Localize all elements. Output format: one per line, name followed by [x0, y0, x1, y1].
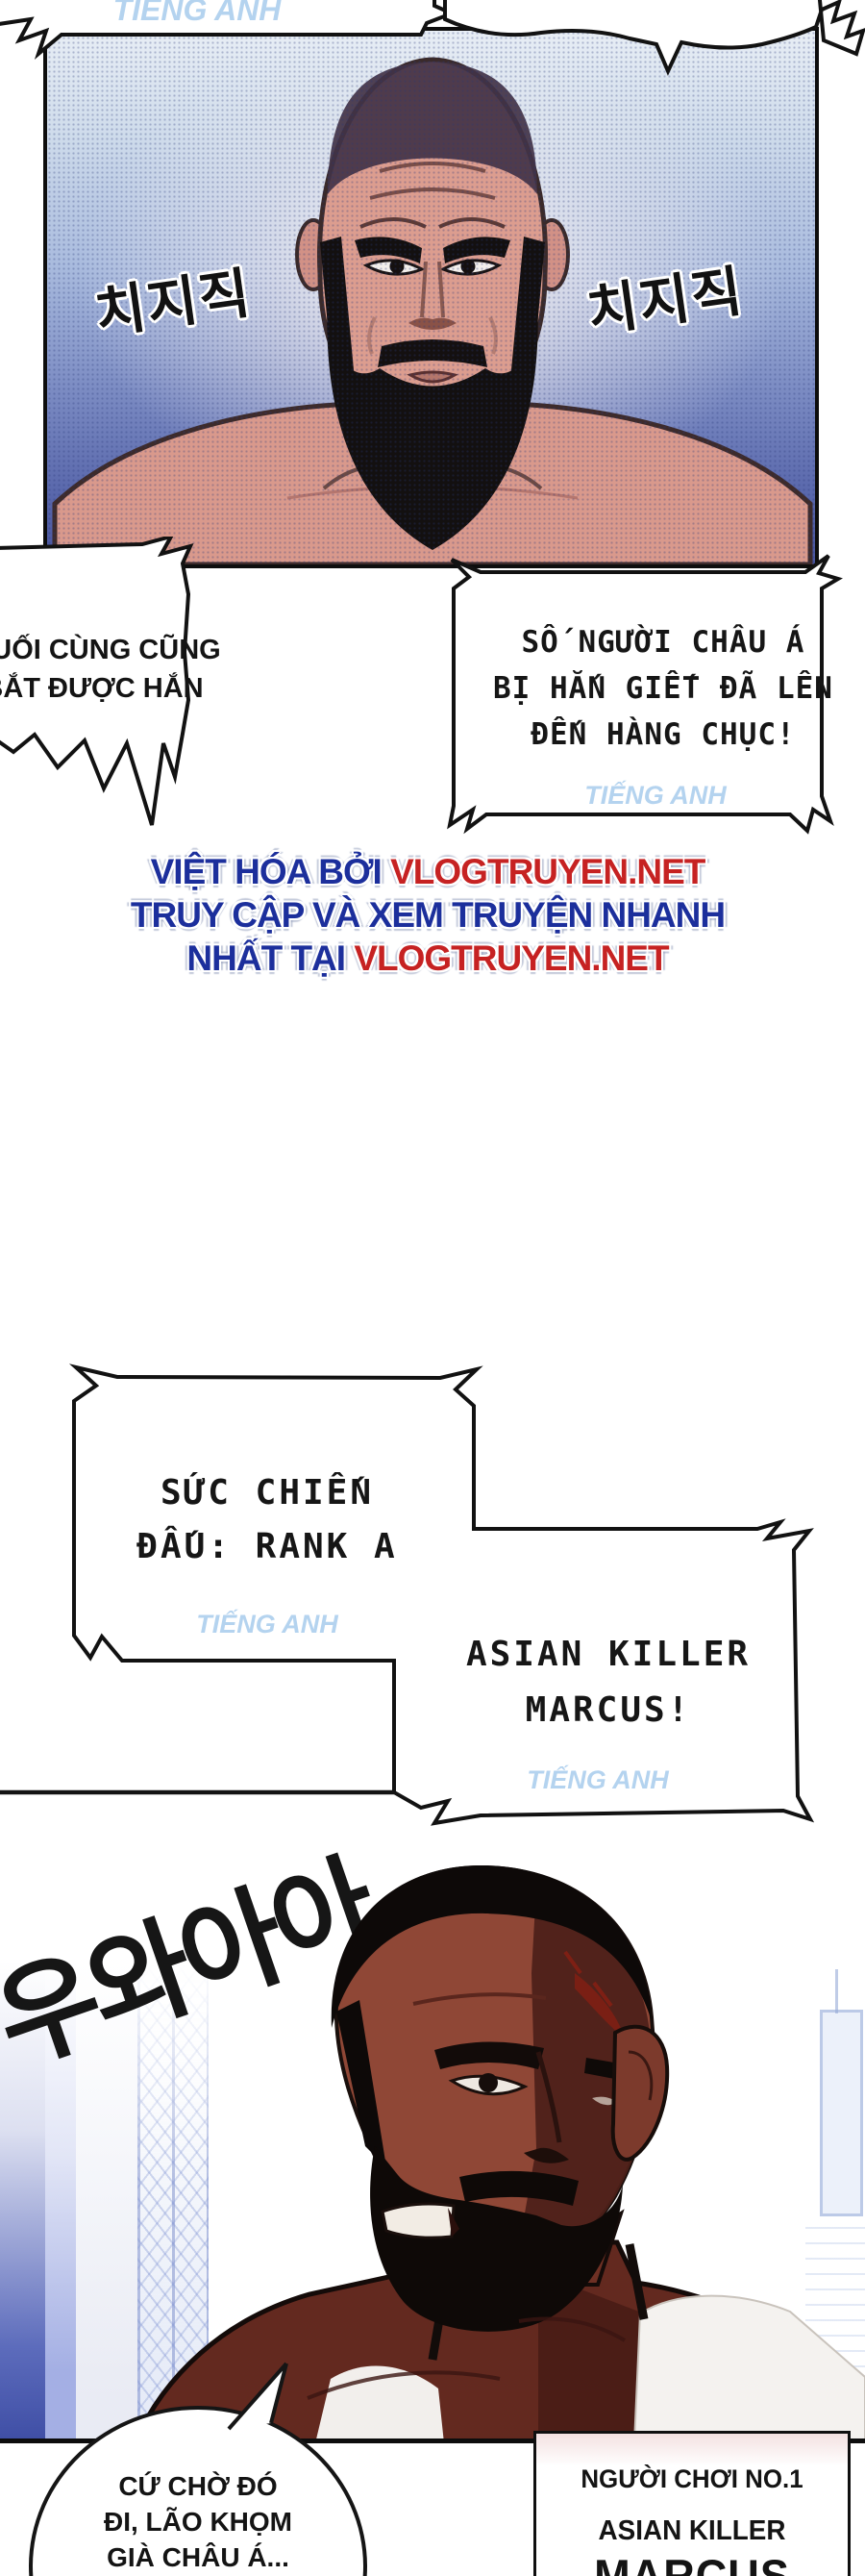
- speech-text: ĐẾN HÀNG CHỤC!: [531, 717, 795, 752]
- speech-text: BẮT ĐƯỢC HẮN: [0, 673, 204, 705]
- system-bubble-group: [0, 1361, 827, 1832]
- system-text: SỨC CHIẾN: [161, 1473, 374, 1513]
- narration-bubble-top-right: [437, 0, 865, 91]
- speech-text: ĐI, LÃO KHỌM: [104, 2507, 292, 2538]
- speech-text: CỨ CHỜ ĐÓ: [118, 2471, 277, 2502]
- system-text: ĐẤU: RANK A: [136, 1527, 397, 1566]
- promo-line-2: TRUY CẬP VÀ XEM TRUYỆN NHANH: [131, 895, 725, 936]
- system-text: ASIAN KILLER: [466, 1635, 751, 1674]
- nameplate-title: NGƯỜI CHƠI NO.1: [542, 2464, 841, 2494]
- speech-text: GIÀ CHÂU Á...: [107, 2542, 289, 2573]
- promo-blue: NHẤT TẠI: [186, 938, 345, 978]
- player-nameplate: NGƯỜI CHƠI NO.1 ASIAN KILLER MARCUS: [533, 2431, 851, 2576]
- marcus-portrait-illustration: [0, 1860, 865, 2443]
- promo-line-3: NHẤT TẠI VLOGTRUYEN.NET: [186, 938, 668, 979]
- promo-line-1: VIỆT HÓA BỞI VLOGTRUYEN.NET: [151, 852, 705, 892]
- speech-bubble-tail: [211, 2352, 308, 2448]
- speech-text: CUỐI CÙNG CŨNG: [0, 635, 221, 666]
- promo-blue: VIỆT HÓA BỞI: [151, 852, 382, 891]
- speech-text: BỊ HẮN GIẾT ĐÃ LÊN: [493, 671, 833, 706]
- watermark-rank-bubble: TIẾNG ANH: [196, 1610, 338, 1639]
- speech-text: SỐ NGƯỜI CHÂU Á: [522, 625, 805, 660]
- watermark-top: TIẾNG ANH: [113, 0, 282, 28]
- comic-page: TIẾNG ANH 치지직 치지직 CUỐI CÙNG CŨNG BẮT ĐƯỢ…: [0, 0, 865, 2576]
- watermark-victims-bubble: TIẾNG ANH: [584, 781, 727, 811]
- nameplate-alias: ASIAN KILLER: [542, 2515, 841, 2547]
- nameplate-name: MARCUS: [542, 2549, 841, 2576]
- promo-red: VLOGTRUYEN.NET: [390, 852, 704, 891]
- watermark-marcus-bubble: TIẾNG ANH: [527, 1765, 669, 1795]
- promo-red: VLOGTRUYEN.NET: [354, 938, 668, 978]
- system-text: MARCUS!: [526, 1690, 692, 1730]
